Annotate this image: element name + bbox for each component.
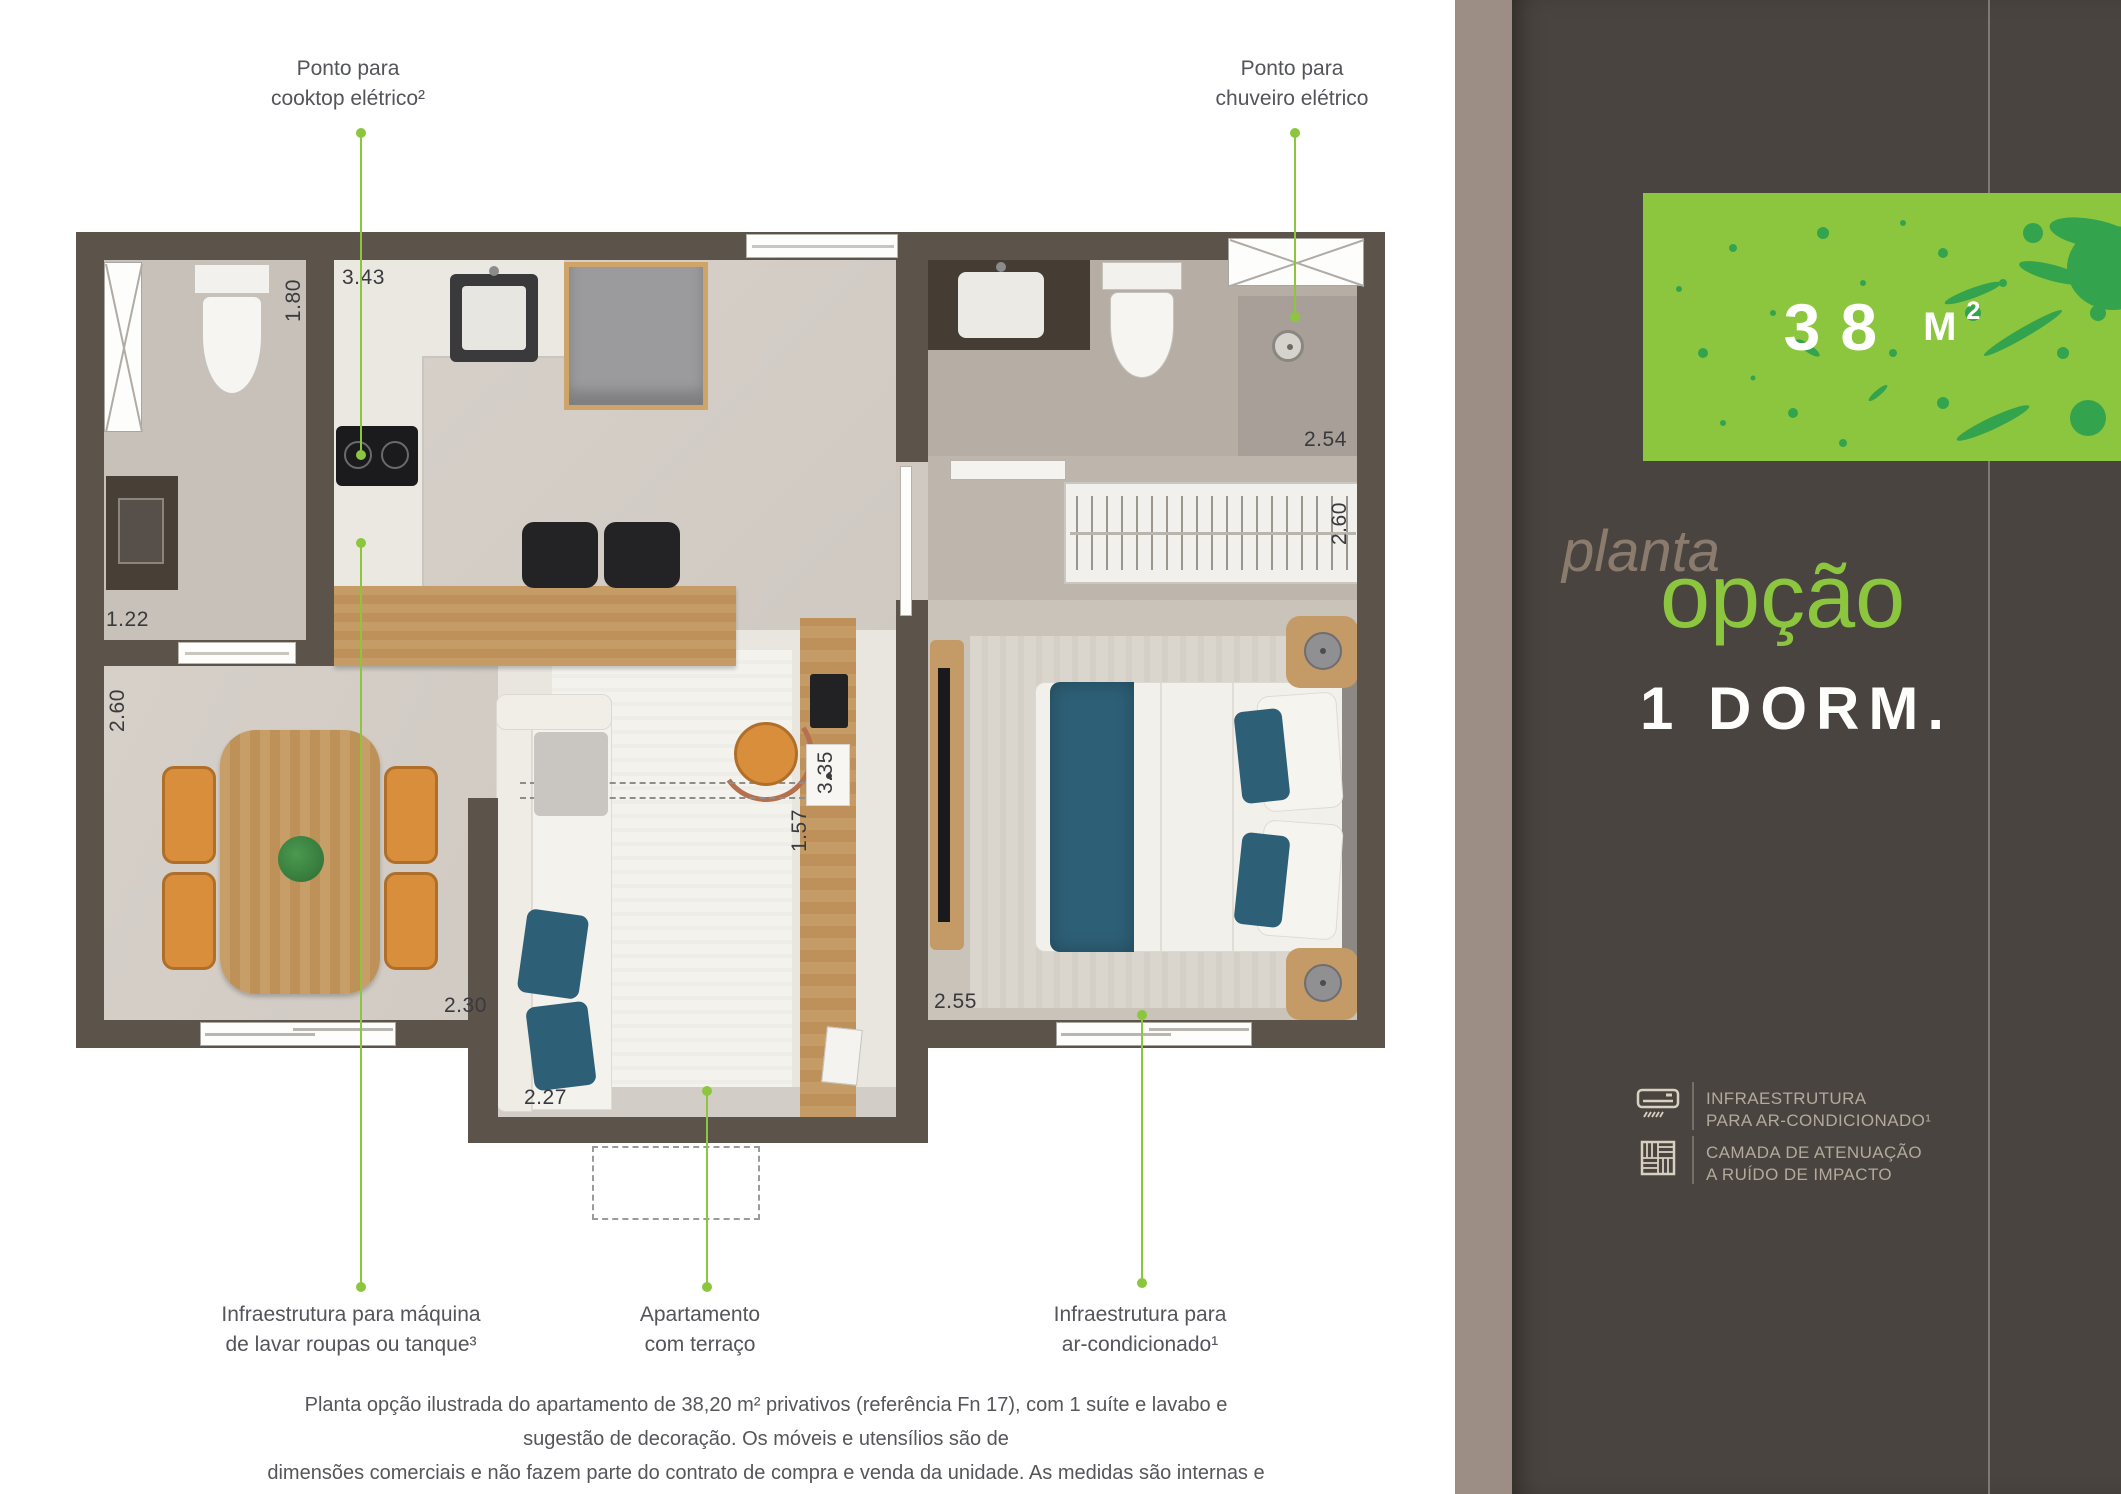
callout-cooktop: Ponto para cooktop elétrico² [238,54,458,115]
bed-runner [1050,682,1134,952]
dining-chair [384,766,438,864]
magazine [821,1026,863,1085]
disclaimer-text: Planta opção ilustrada do apartamento de… [266,1388,1266,1494]
burner [381,441,409,469]
dimension-label: 2.55 [934,990,977,1014]
floor-plan: 1.80 3.43 1.22 2.60 2.30 2.27 3.35 1.57 … [0,0,1455,1494]
x-glyph [105,263,143,433]
parquet-icon [1640,1140,1676,1176]
panel-title-main: opção [1660,552,1905,642]
leader-laundry [360,542,362,1290]
headboard [1342,676,1357,960]
window-living [200,1022,396,1046]
dining-chair [384,872,438,970]
area-unit: M [1923,305,1960,350]
dimension-label: 1.22 [106,608,149,632]
legend-ac-line1: INFRAESTRUTURA [1706,1088,1931,1110]
dimension-label: 2.60 [1328,502,1352,545]
leader-ac [1141,1014,1143,1286]
desk-chair-seat [734,722,798,786]
bar-stool [522,522,598,588]
tv-screen [938,668,950,922]
bath-window-x [1228,238,1364,286]
legend-item-ac: INFRAESTRUTURA PARA AR-CONDICIONADO¹ [1706,1088,1931,1133]
ac-unit-icon [1636,1086,1680,1122]
legend-acoustic-line2: A RUÍDO DE IMPACTO [1706,1164,1922,1186]
table-lamp [1304,964,1342,1002]
wardrobe-rack [1064,482,1362,584]
sofa-pillow-teal [516,908,589,1000]
leader-shower [1294,132,1296,320]
area-badge: 38 M 2 [1643,193,2121,461]
window-bedroom [1056,1022,1252,1046]
dimension-label: 2.30 [444,994,487,1018]
disclaimer-line2: dimensões comerciais e não fazem parte d… [266,1456,1266,1494]
closet-threshold [950,460,1066,480]
x-glyph [1229,239,1365,287]
wall-bedroom-left [896,600,928,1143]
bar-stool [604,522,680,588]
dimension-label: 2.54 [1304,428,1347,452]
area-value: 38 [1784,289,1897,365]
disclaimer-line1: Planta opção ilustrada do apartamento de… [266,1388,1266,1456]
callout-chuveiro: Ponto para chuveiro elétrico [1182,54,1402,115]
bath-faucet [996,262,1006,272]
sofa-pillow-teal [525,1001,597,1092]
legend-item-acoustic: CAMADA DE ATENUAÇÃO A RUÍDO DE IMPACTO [1706,1142,1922,1187]
toilet [194,264,270,294]
dimension-label: 1.80 [282,279,306,322]
wall-top [76,232,1385,260]
dimension-label: 2.27 [524,1086,567,1110]
bed-pillow-teal [1233,708,1290,805]
dimension-label: 2.60 [106,689,130,732]
sofa-back [496,698,532,1112]
wall-terrace-left [468,798,498,1143]
bed-pillow-teal [1233,832,1290,929]
sofa-blanket [534,732,608,816]
wall-lavabo-kitchen [306,232,334,666]
leader-cooktop [360,132,362,458]
legend-divider [1692,1082,1694,1130]
brochure-page: 1.80 3.43 1.22 2.60 2.30 2.27 3.35 1.57 … [0,0,2121,1494]
legend-divider [1692,1136,1694,1184]
legend-acoustic-line1: CAMADA DE ATENUAÇÃO [1706,1142,1922,1164]
laptop [810,674,848,728]
refrigerator [564,262,708,410]
table-lamp [1304,632,1342,670]
dimension-label: 3.43 [342,266,385,290]
bath-counter [928,260,1090,350]
area-label: 38 M 2 [1643,193,2121,461]
sofa-armrest [496,694,612,730]
sink-basin [462,286,526,350]
toilet [1102,262,1182,290]
wall-suite-top [896,232,928,462]
projection-dashed-rect [592,1146,760,1220]
laundry-sink [118,498,164,564]
laundry-counter [106,476,178,590]
wall-right [1357,232,1385,1048]
cooktop [336,426,418,486]
wall-terrace-bottom [468,1117,928,1143]
dining-chair [162,766,216,864]
bath-sink [958,272,1044,338]
suite-door-leaf [900,466,912,616]
panel-accent-strip [1455,0,1512,1494]
lavabo-door [178,642,296,664]
wall-left [76,232,104,1048]
sink-faucet [489,266,499,276]
dimension-label: 3.35 [814,751,838,794]
bar-counter [334,586,736,666]
table-plant [278,836,324,882]
panel-title-sub: 1 DORM. [1640,674,1953,743]
kitchen-sink [450,274,538,362]
legend-ac-line2: PARA AR-CONDICIONADO¹ [1706,1110,1931,1132]
callout-ar-condicionado: Infraestrutura para ar-condicionado¹ [1000,1300,1280,1361]
callout-lavanderia: Infraestrutura para máquina de lavar rou… [186,1300,516,1361]
dining-chair [162,872,216,970]
entry-door-threshold [746,234,898,258]
area-exponent: 2 [1966,297,1980,326]
shaft-window-x [104,262,142,432]
leader-terrace [706,1090,708,1290]
dimension-label: 1.57 [788,809,812,852]
callout-terraco: Apartamento com terraço [590,1300,810,1361]
shower-head [1272,330,1304,362]
